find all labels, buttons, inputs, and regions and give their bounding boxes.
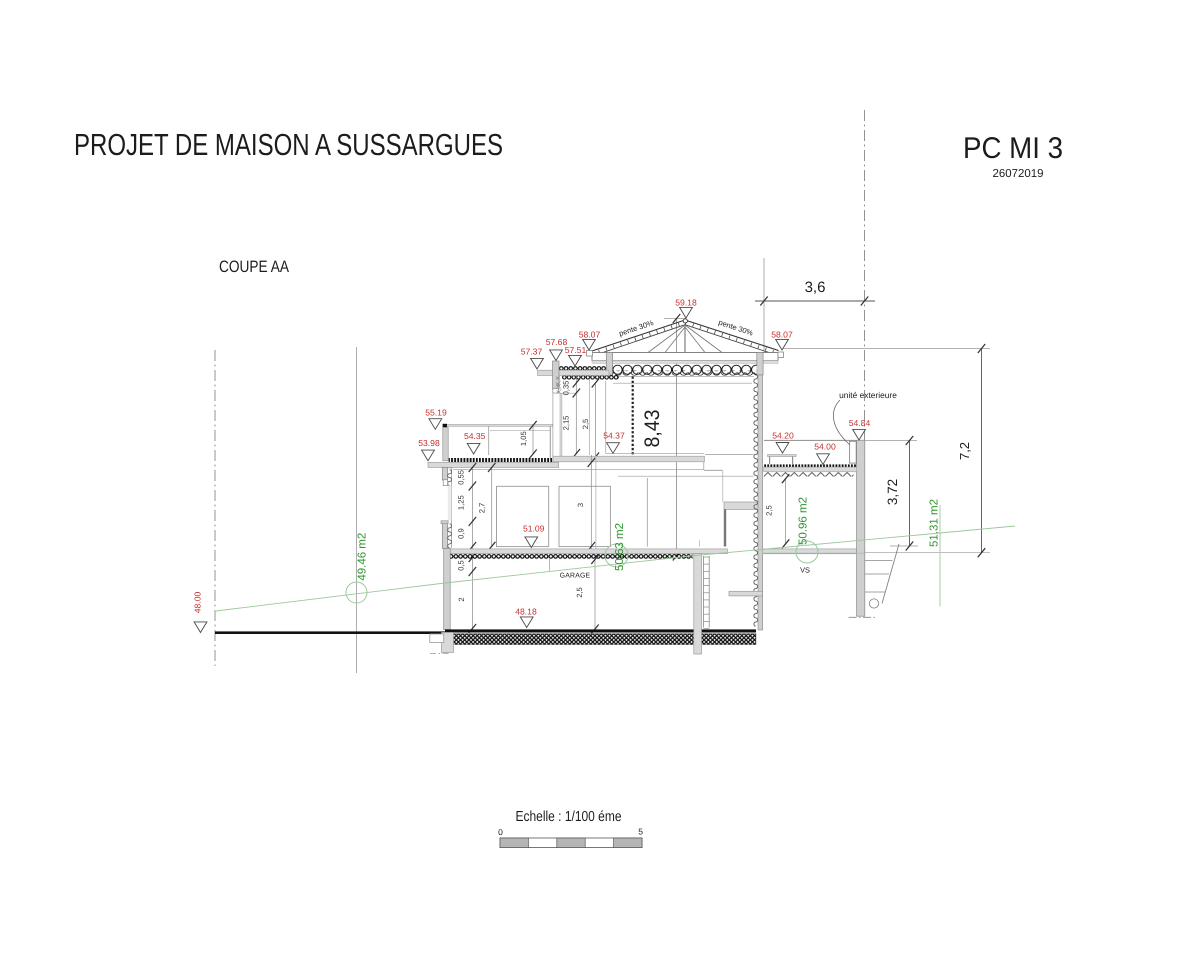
svg-text:Echelle : 1/100 éme: Echelle : 1/100 éme	[516, 809, 622, 825]
svg-text:59.18: 59.18	[675, 298, 697, 308]
svg-text:2,7: 2,7	[478, 503, 487, 514]
svg-text:3,72: 3,72	[885, 479, 900, 505]
svg-text:55.19: 55.19	[425, 408, 447, 418]
svg-text:3: 3	[576, 503, 585, 507]
svg-text:2: 2	[457, 597, 466, 601]
svg-text:48.18: 48.18	[515, 607, 537, 617]
svg-text:0,9: 0,9	[457, 528, 466, 539]
svg-text:2,5: 2,5	[575, 587, 584, 598]
svg-text:57.37: 57.37	[521, 347, 543, 357]
svg-text:1,05: 1,05	[519, 431, 528, 446]
svg-text:VS: VS	[800, 566, 810, 575]
svg-text:57.51: 57.51	[565, 345, 587, 355]
svg-text:26072019: 26072019	[993, 168, 1044, 180]
svg-text:PROJET DE MAISON A SUSSARGUES: PROJET DE MAISON A SUSSARGUES	[74, 128, 503, 162]
svg-text:49.46 m2: 49.46 m2	[357, 533, 369, 581]
svg-text:2,15: 2,15	[562, 416, 571, 431]
svg-text:54.20: 54.20	[772, 430, 794, 440]
svg-text:50.63 m2: 50.63 m2	[614, 523, 626, 571]
svg-text:7,2: 7,2	[957, 442, 972, 460]
svg-text:PC MI 3: PC MI 3	[963, 132, 1063, 165]
svg-text:GARAGE: GARAGE	[560, 573, 591, 580]
svg-text:x,x: x,x	[554, 384, 563, 394]
svg-text:5: 5	[638, 827, 643, 837]
svg-text:2,5: 2,5	[765, 505, 774, 516]
svg-text:0,55: 0,55	[457, 470, 466, 485]
svg-text:58.07: 58.07	[771, 330, 793, 340]
svg-text:54.37: 54.37	[603, 431, 625, 441]
svg-text:0,35: 0,35	[561, 381, 570, 396]
svg-text:0: 0	[498, 827, 503, 837]
svg-text:8,43: 8,43	[641, 410, 664, 448]
svg-text:48.00: 48.00	[193, 592, 203, 614]
svg-text:53.98: 53.98	[418, 438, 440, 448]
svg-text:2,5: 2,5	[581, 419, 590, 430]
svg-text:54.35: 54.35	[464, 431, 486, 441]
svg-text:51.31 m2: 51.31 m2	[929, 499, 941, 547]
svg-text:COUPE AA: COUPE AA	[219, 258, 289, 276]
svg-text:54.00: 54.00	[814, 442, 836, 452]
svg-text:50.96 m2: 50.96 m2	[798, 497, 810, 545]
svg-text:58.07: 58.07	[579, 330, 601, 340]
svg-text:0,5: 0,5	[457, 560, 466, 571]
svg-text:1,25: 1,25	[457, 495, 466, 510]
svg-text:3,6: 3,6	[805, 279, 826, 296]
svg-text:51.09: 51.09	[523, 524, 545, 534]
svg-text:54.84: 54.84	[849, 418, 871, 428]
svg-text:unité exterieure: unité exterieure	[839, 390, 897, 400]
